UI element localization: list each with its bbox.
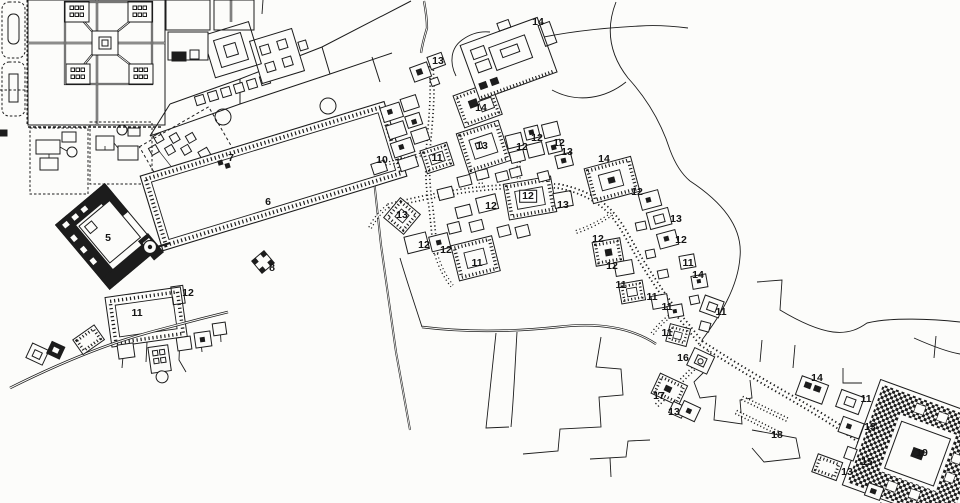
corner-pavilion (129, 64, 153, 84)
structure-8 (252, 251, 275, 274)
town-compound-boxed-12 (503, 176, 557, 220)
building-14-se (795, 376, 828, 404)
complex-14-north (457, 7, 566, 100)
corner-pavilion (66, 64, 90, 84)
garden-pavilion (250, 26, 315, 84)
maydan (140, 102, 407, 251)
town-diamond-13 (384, 198, 421, 235)
town-courtyard-11 (420, 142, 454, 173)
chahar-bagh (28, 0, 165, 125)
corner-pavilion (65, 2, 89, 22)
corner-pavilion (128, 2, 152, 22)
town-compound-11 (451, 236, 500, 281)
garden-bed-row (194, 74, 270, 105)
east-compound-14 (584, 156, 640, 203)
central-town (370, 52, 573, 286)
west-caravanserai-11 (105, 285, 187, 347)
mosque-building (148, 345, 173, 384)
east-cluster (558, 156, 724, 346)
site-map: 1413141212121371011131412612131213135121… (0, 0, 960, 503)
map-drawing (0, 0, 960, 503)
east-courtyard-11 (618, 280, 645, 304)
bazaar-southeast (647, 343, 960, 503)
pavilion-enclosures (30, 122, 152, 194)
